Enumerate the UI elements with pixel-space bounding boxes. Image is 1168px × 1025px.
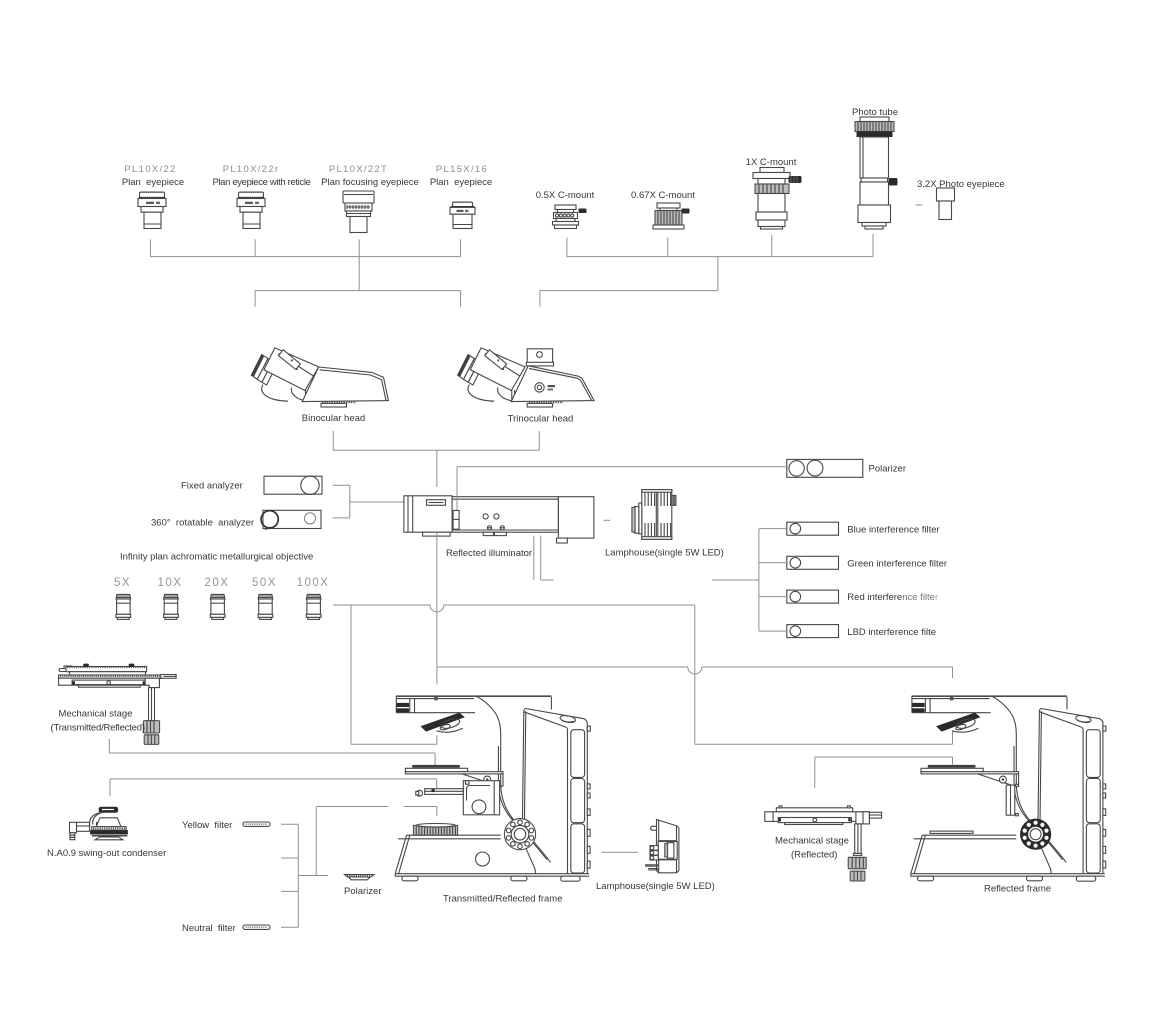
svg-text:Mechanical stage: Mechanical stage [59,709,133,720]
svg-text:Plan eyepiece: Plan eyepiece [430,177,492,188]
svg-text:20X: 20X [205,577,230,589]
svg-text:Red interference filter: Red interference filter [847,592,938,603]
svg-text:Transmitted/Reflected frame: Transmitted/Reflected frame [443,894,563,905]
svg-text:Plan focusing eyepiece: Plan focusing eyepiece [321,177,419,188]
svg-text:Blue interference filter: Blue interference filter [847,524,939,535]
svg-text:Infinity plan achromatic metal: Infinity plan achromatic metallurgical o… [120,552,313,563]
svg-text:Mechanical stage: Mechanical stage [775,836,849,847]
svg-text:Polarizer: Polarizer [869,464,907,475]
svg-text:0.67X C-mount: 0.67X C-mount [631,190,695,201]
svg-text:PL10X/22r: PL10X/22r [223,164,280,175]
svg-text:5X: 5X [114,577,131,589]
svg-text:PL10X/22: PL10X/22 [124,164,176,175]
svg-text:Plan eyepiece with reticle: Plan eyepiece with reticle [212,177,310,188]
svg-text:50X: 50X [252,577,277,589]
svg-text:Trinocular head: Trinocular head [508,414,574,425]
svg-text:(Transmitted/Reflected): (Transmitted/Reflected) [51,723,145,734]
svg-text:Lamphouse(single 5W LED): Lamphouse(single 5W LED) [596,881,715,892]
svg-text:PL10X/22T: PL10X/22T [329,164,388,175]
svg-text:PL15X/16: PL15X/16 [436,164,488,175]
svg-text:Yellow filter: Yellow filter [182,820,232,831]
svg-text:Polarizer: Polarizer [344,886,382,897]
svg-text:LBD interference filte: LBD interference filte [847,627,936,638]
svg-text:3.2X Photo eyepiece: 3.2X Photo eyepiece [917,179,1005,190]
svg-text:1X C-mount: 1X C-mount [746,157,797,168]
svg-text:Fixed analyzer: Fixed analyzer [181,481,243,492]
svg-text:Reflected illuminator: Reflected illuminator [446,548,532,559]
svg-text:Reflected frame: Reflected frame [984,884,1051,895]
svg-text:(Reflected): (Reflected) [791,850,837,861]
svg-text:10X: 10X [158,577,183,589]
svg-text:Binocular head: Binocular head [302,413,365,424]
svg-text:100X: 100X [297,577,330,589]
svg-text:360° rotatable analyzer: 360° rotatable analyzer [151,518,254,529]
svg-text:Photo tube: Photo tube [852,107,898,118]
svg-text:Neutral filter: Neutral filter [182,923,236,934]
svg-text:Plan eyepiece: Plan eyepiece [122,177,184,188]
svg-text:0.5X C-mount: 0.5X C-mount [536,190,595,201]
svg-text:Green interference filter: Green interference filter [847,558,947,569]
svg-text:N.A0.9 swing-out condenser: N.A0.9 swing-out condenser [47,848,166,859]
svg-text:Lamphouse(single 5W LED): Lamphouse(single 5W LED) [605,548,724,559]
